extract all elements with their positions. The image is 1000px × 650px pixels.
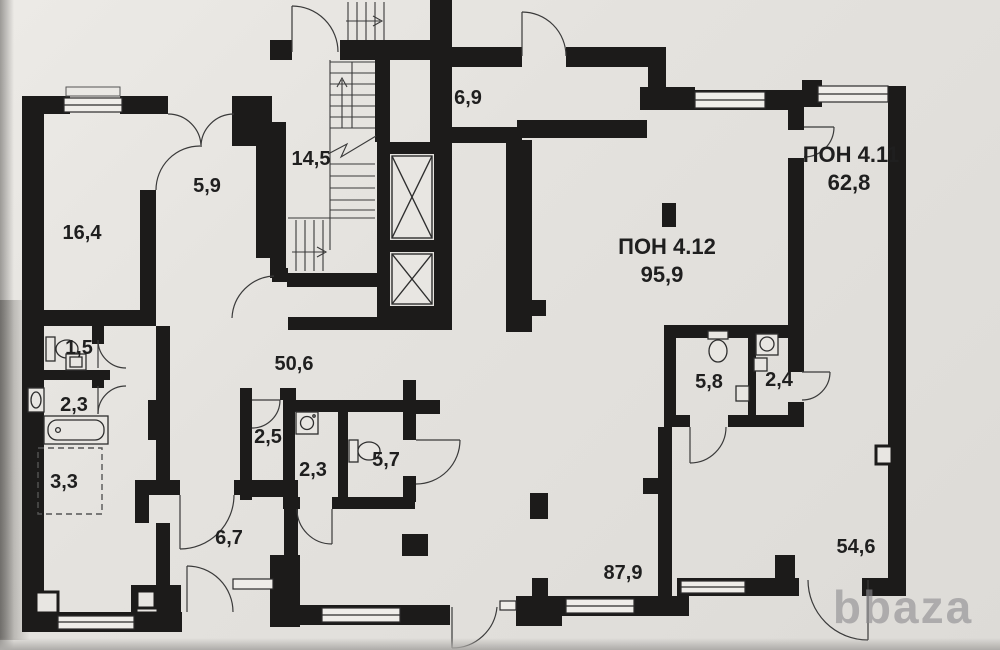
unit-labels: ПОН 4.12 95,9 ПОН 4.11 62,8 (618, 142, 899, 287)
room-label-5-9: 5,9 (193, 175, 221, 197)
double-door-left (168, 114, 201, 147)
room-label-5-8: 5,8 (695, 371, 723, 393)
room-label-54-6: 54,6 (837, 536, 876, 558)
room-label-2-4: 2,4 (765, 369, 794, 391)
room-label-2-5: 2,5 (254, 426, 282, 448)
unit-411-area: 62,8 (828, 170, 871, 195)
double-door-right (201, 114, 234, 147)
sink-icon (736, 386, 749, 401)
sink-icon (756, 334, 778, 355)
room-label-5-7: 5,7 (372, 449, 400, 471)
room-label-2-3b: 2,3 (299, 459, 327, 481)
room-label-3-3: 3,3 (50, 471, 78, 493)
floorplan-photo: 16,4 5,9 14,5 6,9 1,5 2,3 3,3 50,6 2,5 2… (0, 0, 1000, 650)
stair-break-line (328, 136, 376, 157)
room-label-6-9: 6,9 (454, 87, 482, 109)
unit-411-name: ПОН 4.11 (803, 142, 900, 167)
elevator-shafts (392, 156, 432, 304)
room-label-2-3a: 2,3 (60, 394, 88, 416)
room-label-50-6: 50,6 (275, 353, 314, 375)
room-label-6-7: 6,7 (215, 527, 243, 549)
sink-icon (28, 388, 44, 412)
floorplan-drawing: 16,4 5,9 14,5 6,9 1,5 2,3 3,3 50,6 2,5 2… (0, 0, 1000, 650)
bathtub-icon (44, 416, 108, 444)
toilet-icon (708, 331, 728, 362)
room-label-16-4: 16,4 (63, 222, 103, 244)
unit-412-area: 95,9 (641, 262, 684, 287)
balcony-rail (66, 87, 120, 96)
sink-icon (296, 412, 318, 434)
unit-412-name: ПОН 4.12 (618, 234, 716, 259)
watermark: bbaza (833, 581, 973, 633)
photo-edge-bottom (0, 638, 1000, 650)
room-label-14-5: 14,5 (292, 148, 331, 170)
room-label-1-5: 1,5 (65, 337, 93, 359)
room-label-87-9: 87,9 (604, 562, 643, 584)
